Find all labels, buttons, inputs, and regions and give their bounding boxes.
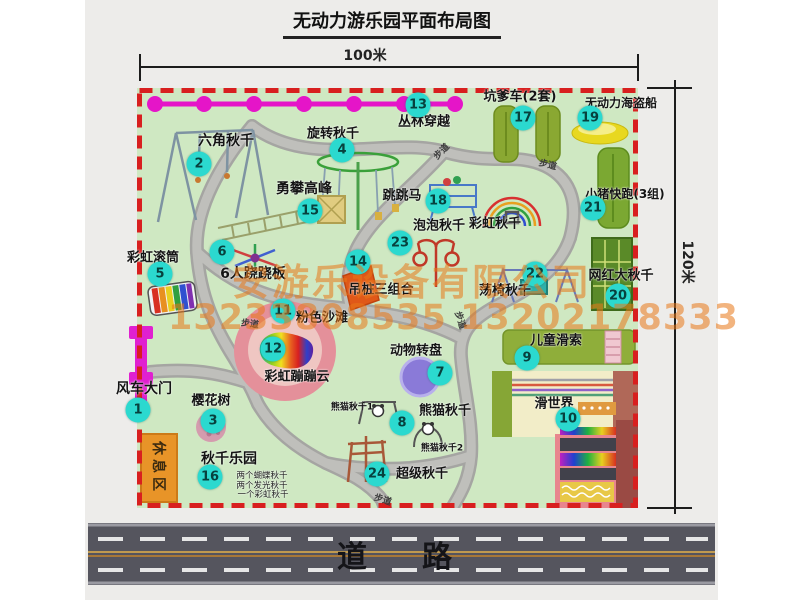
badge-swing-park: 16 [198, 465, 223, 490]
label-swing-chair: 荡椅秋千 [479, 285, 531, 298]
badge-bubble-swing: 23 [388, 231, 413, 256]
label-bubble-swing: 泡泡秋千 [413, 220, 465, 233]
badge-cherry-tree: 3 [201, 409, 226, 434]
label-super-swing: 超级秋千 [396, 468, 448, 481]
label-hexagon-swing: 六角秋千 [198, 134, 254, 148]
page-title: 无动力游乐园平面布局图 [283, 7, 501, 39]
label-rainbow-swing: 彩虹秋千 [469, 218, 521, 231]
badge-jumping-horse: 18 [426, 189, 451, 214]
label-hanging-pile-combo: 吊桩三组合 [348, 284, 413, 297]
badge-pink-beach: 11 [271, 299, 296, 324]
width-dimension-label: 100米 [343, 45, 386, 65]
road-label: 道路 [337, 532, 507, 576]
badge-rotating-swing: 4 [330, 138, 355, 163]
label-animal-carousel: 动物转盘 [390, 345, 442, 358]
badge-peak-climbing: 15 [298, 199, 323, 224]
label-windmill-gate: 风车大门 [116, 382, 172, 396]
label-swing-note-3: 一个彩虹秋千 [237, 491, 288, 500]
badge-windmill-gate: 1 [126, 398, 151, 423]
label-jumping-horse: 跳跳马 [382, 190, 421, 203]
rainbow-roller-icon [147, 281, 198, 316]
label-peak-climbing: 勇攀高峰 [276, 182, 332, 196]
label-big-swing: 网红大秋千 [588, 270, 653, 283]
label-kids-zipline: 儿童滑索 [530, 335, 582, 348]
badge-hexagon-swing: 2 [187, 152, 212, 177]
badge-kengdie-car: 17 [511, 106, 536, 131]
badge-piggy-run: 21 [581, 196, 606, 221]
badge-rainbow-roller: 5 [148, 262, 173, 287]
badge-big-swing: 20 [606, 284, 631, 309]
label-cherry-tree: 樱花树 [191, 395, 230, 408]
label-rainbow-bounce-cloud: 彩虹蹦蹦云 [264, 371, 329, 384]
badge-kids-zipline: 9 [515, 346, 540, 371]
label-six-person-seesaw: 6人跷跷板 [220, 267, 286, 281]
label-kengdie-car: 坑爹车(2套) [484, 91, 557, 104]
badge-super-swing: 24 [365, 462, 390, 487]
rest-area-label: 休息区 [149, 441, 169, 495]
label-jungle-crossing: 丛林穿越 [398, 116, 450, 129]
badge-swing-chair: 22 [523, 262, 548, 287]
label-panda-swing: 熊猫秋千 [419, 405, 471, 418]
badge-slide-world: 10 [556, 407, 581, 432]
label-rotating-swing: 旋转秋千 [307, 128, 359, 141]
label-swing-note-1: 两个蝴蝶秋千 [236, 472, 287, 481]
badge-rainbow-bounce-cloud: 12 [261, 337, 286, 362]
label-pink-beach: 粉色沙滩 [296, 312, 348, 325]
badge-animal-carousel: 7 [428, 361, 453, 386]
label-panda-swing-1: 熊猫秋千1 [331, 404, 373, 413]
badge-six-person-seesaw: 6 [210, 240, 235, 265]
plan-drawing [0, 0, 800, 600]
playground-layout-plan: 无动力游乐园平面布局图 100米 120米 道路 休息区 步道 步道 步道 步道… [0, 0, 800, 600]
badge-jungle-crossing: 13 [406, 93, 431, 118]
label-panda-swing-2: 熊猫秋千2 [421, 445, 463, 454]
badge-hanging-pile-combo: 14 [346, 250, 371, 275]
badge-panda-swing: 8 [390, 411, 415, 436]
badge-pirate-ship: 19 [578, 106, 603, 131]
height-dimension-label: 120米 [678, 240, 698, 283]
path-label: 步道 [240, 315, 260, 330]
